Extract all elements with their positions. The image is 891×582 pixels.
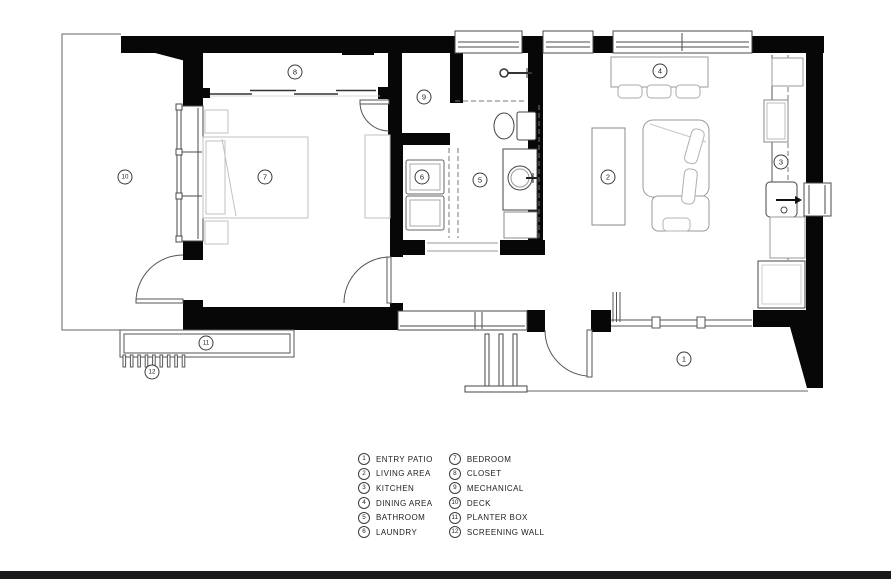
svg-text:6: 6 xyxy=(420,173,424,182)
room-marker-screening-wall: 12 xyxy=(145,365,159,379)
wall-bedroom-east xyxy=(390,145,403,257)
sofa xyxy=(643,120,709,231)
legend-label: BATHROOM xyxy=(376,513,425,522)
legend-label: PLANTER BOX xyxy=(467,513,528,522)
legend-number-badge: 8 xyxy=(449,468,461,480)
legend-item-deck: 10DECK xyxy=(449,496,545,511)
room-marker-planter-box: 11 xyxy=(199,336,213,350)
wall-south-block-b xyxy=(591,310,611,332)
floor-plan-page: 123456789101112 1ENTRY PATIO2LIVING AREA… xyxy=(0,0,891,582)
room-marker-bedroom: 7 xyxy=(258,170,272,184)
room-marker-closet: 8 xyxy=(288,65,302,79)
legend-item-living-area: 2LIVING AREA xyxy=(358,467,433,482)
legend-item-screening-wall: 12SCREENING WALL xyxy=(449,525,545,540)
legend-label: ENTRY PATIO xyxy=(376,455,433,464)
svg-text:7: 7 xyxy=(263,173,267,182)
legend-label: SCREENING WALL xyxy=(467,528,545,537)
legend-label: CLOSET xyxy=(467,469,502,478)
legend-label: BEDROOM xyxy=(467,455,512,464)
room-marker-entry-patio: 1 xyxy=(677,352,691,366)
legend-item-kitchen: 3KITCHEN xyxy=(358,481,433,496)
legend-label: LAUNDRY xyxy=(376,528,417,537)
legend-column: 7BEDROOM8CLOSET9MECHANICAL10DECK11PLANTE… xyxy=(449,452,545,540)
legend-number-badge: 9 xyxy=(449,482,461,494)
mechanical-door xyxy=(360,100,389,131)
svg-text:9: 9 xyxy=(422,93,426,102)
wall-southeast-diagonal xyxy=(790,327,823,388)
legend-number-badge: 11 xyxy=(449,512,461,524)
legend-number-badge: 4 xyxy=(358,497,370,509)
legend-label: MECHANICAL xyxy=(467,484,524,493)
svg-text:4: 4 xyxy=(658,67,662,76)
legend: 1ENTRY PATIO2LIVING AREA3KITCHEN4DINING … xyxy=(358,452,544,540)
bed xyxy=(203,137,308,218)
legend-item-entry-patio: 1ENTRY PATIO xyxy=(358,452,433,467)
wall-south-band-west xyxy=(183,307,398,330)
room-marker-deck: 10 xyxy=(118,170,132,184)
bedroom-door xyxy=(344,257,391,303)
wall-closet-stub xyxy=(342,45,374,55)
kitchen-counter xyxy=(758,55,805,308)
toilet xyxy=(494,112,536,140)
room-marker-bathroom: 5 xyxy=(473,173,487,187)
room-marker-laundry: 6 xyxy=(415,170,429,184)
bedroom-dresser xyxy=(365,135,390,218)
room-marker-mechanical: 9 xyxy=(417,90,431,104)
window-living-south xyxy=(611,317,752,328)
window-north-3 xyxy=(613,31,752,53)
window-kitchen-east xyxy=(804,183,831,216)
kitchen-dishwasher xyxy=(770,217,805,258)
wall-closet-track-end-left xyxy=(200,88,210,98)
legend-number-badge: 5 xyxy=(358,512,370,524)
svg-text:3: 3 xyxy=(779,158,783,167)
window-north-1 xyxy=(455,31,522,53)
entry-steps xyxy=(465,334,527,392)
window-bedroom-west xyxy=(176,104,203,242)
bathroom-vanity xyxy=(503,149,537,238)
wall-southeast-corner xyxy=(753,310,823,327)
legend-item-dining-area: 4DINING AREA xyxy=(358,496,433,511)
wall-hall-south-right xyxy=(500,240,545,255)
downspout-post xyxy=(613,292,620,322)
svg-text:11: 11 xyxy=(203,340,210,347)
svg-text:12: 12 xyxy=(149,369,156,376)
legend-item-planter-box: 11PLANTER BOX xyxy=(449,510,545,525)
legend-label: DINING AREA xyxy=(376,499,433,508)
legend-item-bathroom: 5BATHROOM xyxy=(358,510,433,525)
window-hall-south xyxy=(398,311,527,330)
nightstand-north xyxy=(205,110,228,133)
legend-label: LIVING AREA xyxy=(376,469,431,478)
legend-label: DECK xyxy=(467,499,491,508)
entry-door xyxy=(545,330,592,377)
wall-east-upper xyxy=(806,53,823,183)
legend-item-bedroom: 7BEDROOM xyxy=(449,452,545,467)
legend-column: 1ENTRY PATIO2LIVING AREA3KITCHEN4DINING … xyxy=(358,452,433,540)
wall-west-upper xyxy=(183,53,203,112)
deck-door xyxy=(136,255,183,303)
room-marker-living-area: 2 xyxy=(601,170,615,184)
legend-item-closet: 8CLOSET xyxy=(449,467,545,482)
svg-text:5: 5 xyxy=(478,176,482,185)
svg-text:2: 2 xyxy=(606,173,610,182)
legend-item-mechanical: 9MECHANICAL xyxy=(449,481,545,496)
legend-item-laundry: 6LAUNDRY xyxy=(358,525,433,540)
shower-head xyxy=(500,68,532,78)
room-marker-kitchen: 3 xyxy=(774,155,788,169)
bathroom-opening xyxy=(427,243,498,251)
svg-text:10: 10 xyxy=(122,174,129,181)
nightstand-south xyxy=(205,221,228,244)
kitchen-cabinet xyxy=(772,58,803,86)
footer-bar xyxy=(0,571,891,579)
room-marker-dining-area: 4 xyxy=(653,64,667,78)
window-north-2 xyxy=(543,31,593,53)
wall-mechanical-east xyxy=(450,53,463,103)
closet-sliding-doors xyxy=(210,91,380,97)
wall-mechanical-south xyxy=(388,133,450,145)
legend-number-badge: 6 xyxy=(358,526,370,538)
legend-label: KITCHEN xyxy=(376,484,414,493)
dining-chairs xyxy=(618,85,700,98)
wall-mechanical-west xyxy=(388,53,402,138)
wall-east-lower xyxy=(806,216,823,312)
legend-number-badge: 12 xyxy=(449,526,461,538)
legend-number-badge: 2 xyxy=(358,468,370,480)
svg-text:1: 1 xyxy=(682,355,686,364)
legend-number-badge: 1 xyxy=(358,453,370,465)
legend-number-badge: 7 xyxy=(449,453,461,465)
svg-text:8: 8 xyxy=(293,68,297,77)
legend-number-badge: 10 xyxy=(449,497,461,509)
dryer xyxy=(406,196,444,230)
legend-number-badge: 3 xyxy=(358,482,370,494)
wall-south-block-a xyxy=(527,310,545,332)
